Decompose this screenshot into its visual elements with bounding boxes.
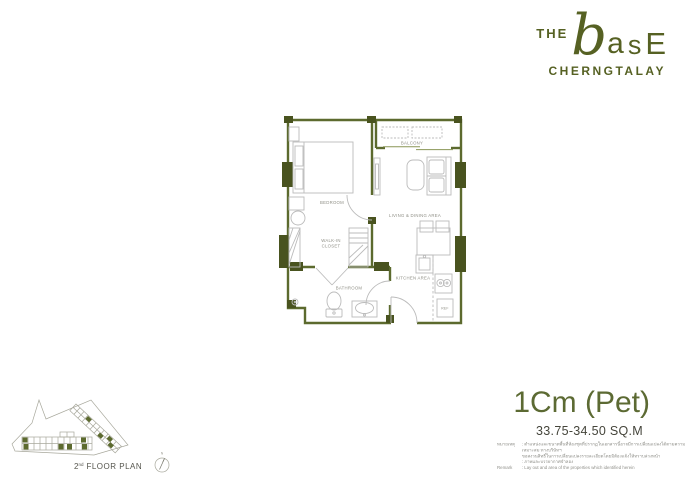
label-walkin-line2: CLOSET (322, 244, 341, 249)
brand-letter-b: b (571, 12, 607, 60)
label-bedroom: BEDROOM (320, 200, 344, 205)
remark-block: หมายเหตุ : ตำแหน่งและขนาดพื้นที่ห้องชุดท… (497, 442, 693, 471)
site-key-plan: N 2ndFLOOR PLAN (10, 388, 180, 483)
label-kitchen: KITCHEN AREA (396, 276, 431, 281)
remark-thai-label: หมายเหตุ (497, 442, 522, 454)
label-balcony: BALCONY (401, 141, 423, 146)
unit-area: 33.75-34.50 SQ.M (536, 424, 643, 438)
compass-north-label: N (161, 452, 164, 456)
brand-location: CHERNGTALAY (516, 64, 666, 78)
floor-ordinal-suffix: nd (78, 462, 84, 467)
compass-icon (155, 458, 169, 472)
sliding-door (383, 147, 453, 150)
brand-letter-s: s (628, 30, 646, 61)
unit-floor-plan: BEDROOM BALCONY LIVING & DINING AREA WAL… (265, 105, 480, 340)
label-living-dining: LIVING & DINING AREA (389, 213, 441, 218)
label-ref: REF (441, 307, 449, 311)
brand-the: THE (536, 26, 568, 41)
floor-plan-caption: 2ndFLOOR PLAN (74, 462, 142, 471)
unit-type-name: 1Cm (Pet) (513, 386, 650, 420)
remark-en-line: : Lay out and area of the properties whi… (522, 465, 693, 471)
brand-logo: THE b a s E CHERNGTALAY (516, 12, 666, 78)
remark-thai-line1: : ตำแหน่งและขนาดพื้นที่ห้องชุดที่ปรากฏใน… (522, 442, 693, 454)
label-bathroom: BATHROOM (336, 286, 363, 291)
floor-plan-text: FLOOR PLAN (86, 462, 142, 471)
label-walkin-line1: WALK-IN (321, 238, 341, 243)
floorplan-page: THE b a s E CHERNGTALAY (0, 0, 700, 495)
brand-letter-e: E (645, 26, 666, 62)
brand-wordmark: THE b a s E (516, 12, 666, 62)
remark-en-label: Remark (497, 465, 522, 471)
brand-letter-a: a (607, 27, 628, 61)
